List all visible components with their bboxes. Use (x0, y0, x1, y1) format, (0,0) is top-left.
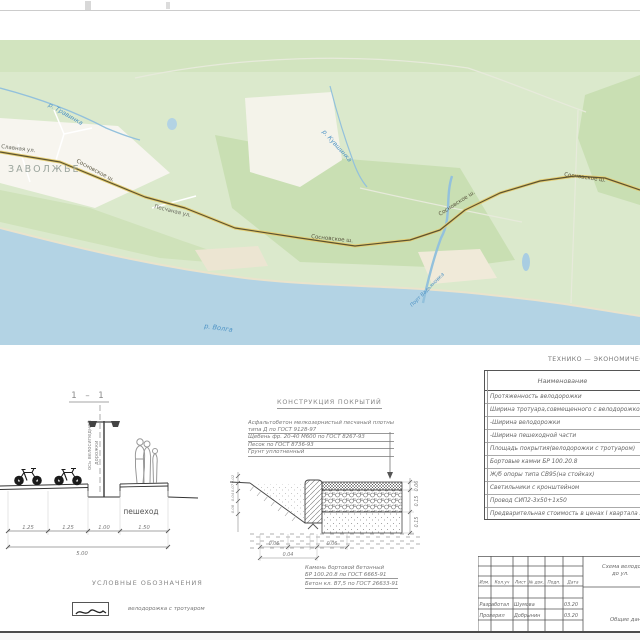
legend-item-label: велодорожка с тротуаром (128, 606, 205, 612)
teo-row: Предварительная стоимость в ценах I квар… (485, 508, 640, 521)
page-bottom-margin (0, 633, 640, 640)
svg-text:0.07: 0.07 (230, 483, 235, 492)
svg-text:Разработал: Разработал (480, 602, 510, 608)
stamp-header-cells: Изм. Кол.уч Лист № док. Подп. Дата (479, 580, 578, 586)
svg-text:0.15: 0.15 (414, 496, 420, 507)
svg-text:Шумова: Шумова (514, 602, 535, 608)
svg-text:0.06: 0.06 (414, 481, 420, 492)
teo-table: Наименование Протяженность велодорожки Ш… (484, 370, 640, 520)
curb-note: Камень бортовой бетонный (305, 565, 398, 572)
detail-dims-right: 0.06 0.15 0.15 (414, 481, 420, 528)
svg-text:Лист: Лист (514, 580, 526, 586)
bicycle-symbol (14, 469, 82, 486)
map-district-label: ЗАВОЛЖЬЕ (8, 164, 80, 175)
teo-row: Провод СИП2-3х50+1х50 (485, 495, 640, 508)
total-dimension-label: 5.00 (76, 551, 88, 557)
svg-text:Кол.уч: Кол.уч (495, 580, 510, 586)
svg-text:03.20: 03.20 (564, 613, 578, 619)
compaction-symbol (308, 524, 318, 529)
pedestrian-figures (135, 439, 157, 483)
asphalt-layer (322, 482, 402, 490)
axis-label: дорожки (94, 441, 100, 465)
frame-top-line (0, 10, 640, 11)
construction-title: КОНСТРУКЦИЯ ПОКРЫТИЙ (277, 398, 382, 409)
svg-text:Добрынин: Добрынин (513, 613, 541, 619)
pavement-detail: 0.06 0.15 0.15 0.02 0.07 0.04 0.08 0.06 … (230, 420, 480, 570)
svg-text:0.02: 0.02 (230, 474, 235, 483)
concrete-note: Бетон кл. В7,5 по ГОСТ 26633-91 (305, 581, 398, 589)
svg-text:Схема велодорожки: Схема велодорожки (602, 564, 640, 570)
svg-text:0.06: 0.06 (327, 541, 338, 547)
svg-text:1.25: 1.25 (22, 525, 34, 531)
curb-stone (305, 480, 322, 523)
svg-text:Проверил: Проверил (480, 613, 505, 619)
detail-dim-bottom2: 0.04 (283, 552, 294, 558)
detail-dims-left: 0.02 0.07 0.04 0.08 (230, 474, 235, 513)
svg-text:1.25: 1.25 (62, 525, 74, 531)
sand-layer (322, 512, 402, 533)
curb-note: БР 100.20.8 по ГОСТ 6665-91 (305, 572, 398, 580)
teo-column-header: Наименование (485, 371, 640, 391)
svg-text:Подп.: Подп. (547, 580, 560, 586)
stamp-doc-title: Схема велодорожки до ул. Общие данные (602, 564, 640, 623)
dimension-labels: 1.25 1.25 1.00 1.50 (22, 525, 150, 531)
teo-row: Ж/б опоры типа СВ95(на стойках) (485, 469, 640, 482)
svg-text:1.50: 1.50 (138, 525, 150, 531)
crushed-stone-layer (322, 490, 402, 512)
location-map: ЗАВОЛЖЬЕ Славная ул. Песчаная ул. Соснов… (0, 40, 640, 345)
drawing-sheet: ЗАВОЛЖЬЕ Славная ул. Песчаная ул. Соснов… (0, 0, 640, 640)
section-title: 1 – 1 (71, 391, 106, 401)
teo-row: Протяженность велодорожки (485, 391, 640, 404)
svg-text:03.20: 03.20 (564, 602, 578, 608)
teo-row: Ширина тротуара,совмещенного с велодорож… (485, 404, 640, 417)
table-inner-border (487, 371, 488, 519)
surface-lines (0, 483, 198, 498)
svg-text:0.04: 0.04 (230, 492, 235, 501)
curb-notes: Камень бортовой бетонный БР 100.20.8 по … (305, 565, 398, 589)
svg-text:0.06: 0.06 (269, 541, 280, 547)
svg-text:до ул.: до ул. (611, 571, 629, 577)
legend-title: УСЛОВНЫЕ ОБОЗНАЧЕНИЯ (92, 579, 203, 587)
teo-row: Светильники с кронштейном (485, 482, 640, 495)
teo-table-title: ТЕХНИКО — ЭКОНОМИЧЕСКИЕ (548, 356, 640, 363)
teo-row: Бортовые камни БР 100.20.8 (485, 456, 640, 469)
svg-text:Дата: Дата (566, 580, 578, 586)
legend-symbol-box (72, 602, 109, 616)
teo-row: Площадь покрытия(велодорожки с тротуаром… (485, 443, 640, 456)
crop-mark (166, 2, 170, 9)
pedestrian-label: пешеход (123, 507, 158, 516)
bike-path-symbol (73, 606, 108, 618)
svg-text:0.08: 0.08 (230, 504, 235, 513)
crop-mark (85, 1, 91, 10)
cross-section-1-1: 1 – 1 ось велосипедной дорожки (0, 385, 210, 570)
extension-lines (8, 491, 168, 549)
axis-label: ось велосипедной (86, 420, 93, 470)
svg-text:0.15: 0.15 (414, 517, 420, 528)
svg-text:Общие данные: Общие данные (610, 617, 640, 623)
title-block: Изм. Кол.уч Лист № док. Подп. Дата Разра… (478, 556, 640, 632)
svg-text:№ док.: № док. (528, 580, 544, 586)
teo-row: -Ширина пешеходной части (485, 430, 640, 443)
teo-row: -Ширина велодорожки (485, 417, 640, 430)
svg-text:1.00: 1.00 (98, 525, 110, 531)
svg-text:Изм.: Изм. (479, 580, 489, 586)
